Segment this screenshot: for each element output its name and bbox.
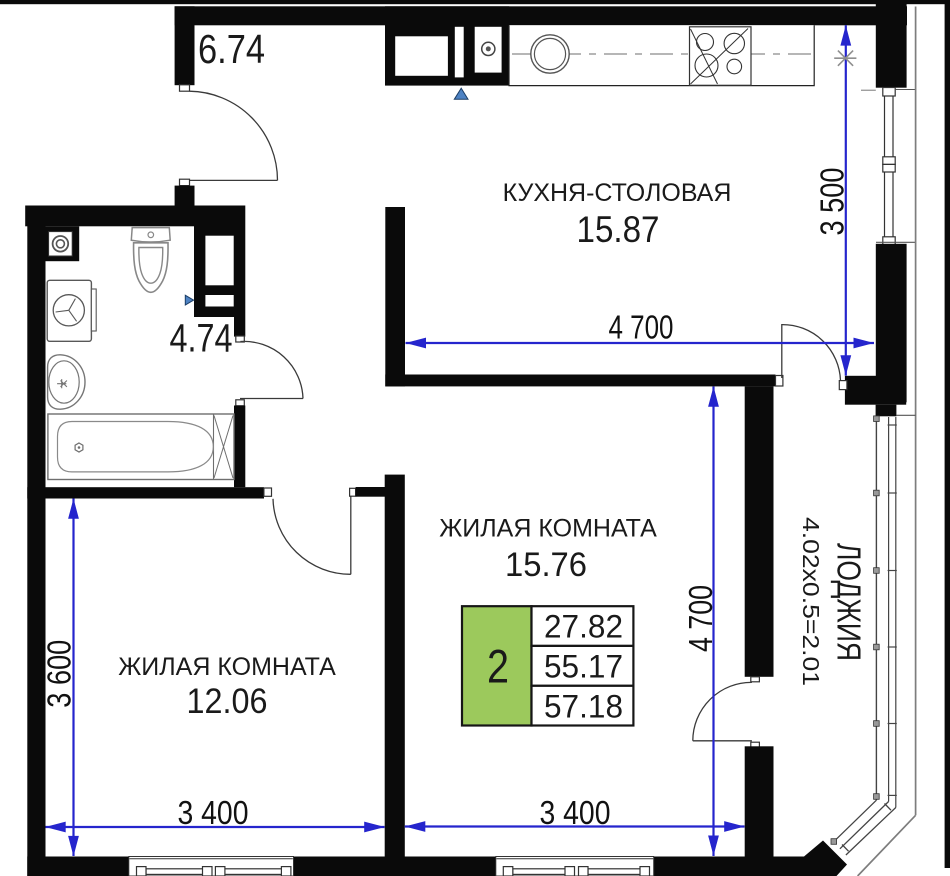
svg-text:4 700: 4 700 [682,585,719,652]
svg-text:6.74: 6.74 [198,26,265,72]
svg-text:55.17: 55.17 [544,649,623,685]
svg-text:4.02х0.5=2.01: 4.02х0.5=2.01 [798,517,824,686]
svg-text:2: 2 [487,640,509,693]
svg-text:ЖИЛАЯ КОМНАТА: ЖИЛАЯ КОМНАТА [439,515,657,543]
svg-text:15.87: 15.87 [577,209,660,250]
svg-text:4.74: 4.74 [170,317,233,361]
svg-text:3 600: 3 600 [41,640,78,708]
svg-text:ЖИЛАЯ КОМНАТА: ЖИЛАЯ КОМНАТА [118,653,336,681]
svg-text:4 700: 4 700 [609,309,674,346]
svg-text:3 500: 3 500 [814,168,851,236]
svg-text:КУХНЯ-СТОЛОВАЯ: КУХНЯ-СТОЛОВАЯ [503,179,732,207]
svg-text:ЛОДЖИЯ: ЛОДЖИЯ [831,543,868,661]
svg-text:57.18: 57.18 [544,689,623,725]
svg-text:3 400: 3 400 [540,794,611,831]
svg-text:3 400: 3 400 [178,794,249,831]
svg-text:15.76: 15.76 [505,546,587,584]
svg-text:27.82: 27.82 [544,609,623,645]
svg-text:12.06: 12.06 [187,682,268,721]
